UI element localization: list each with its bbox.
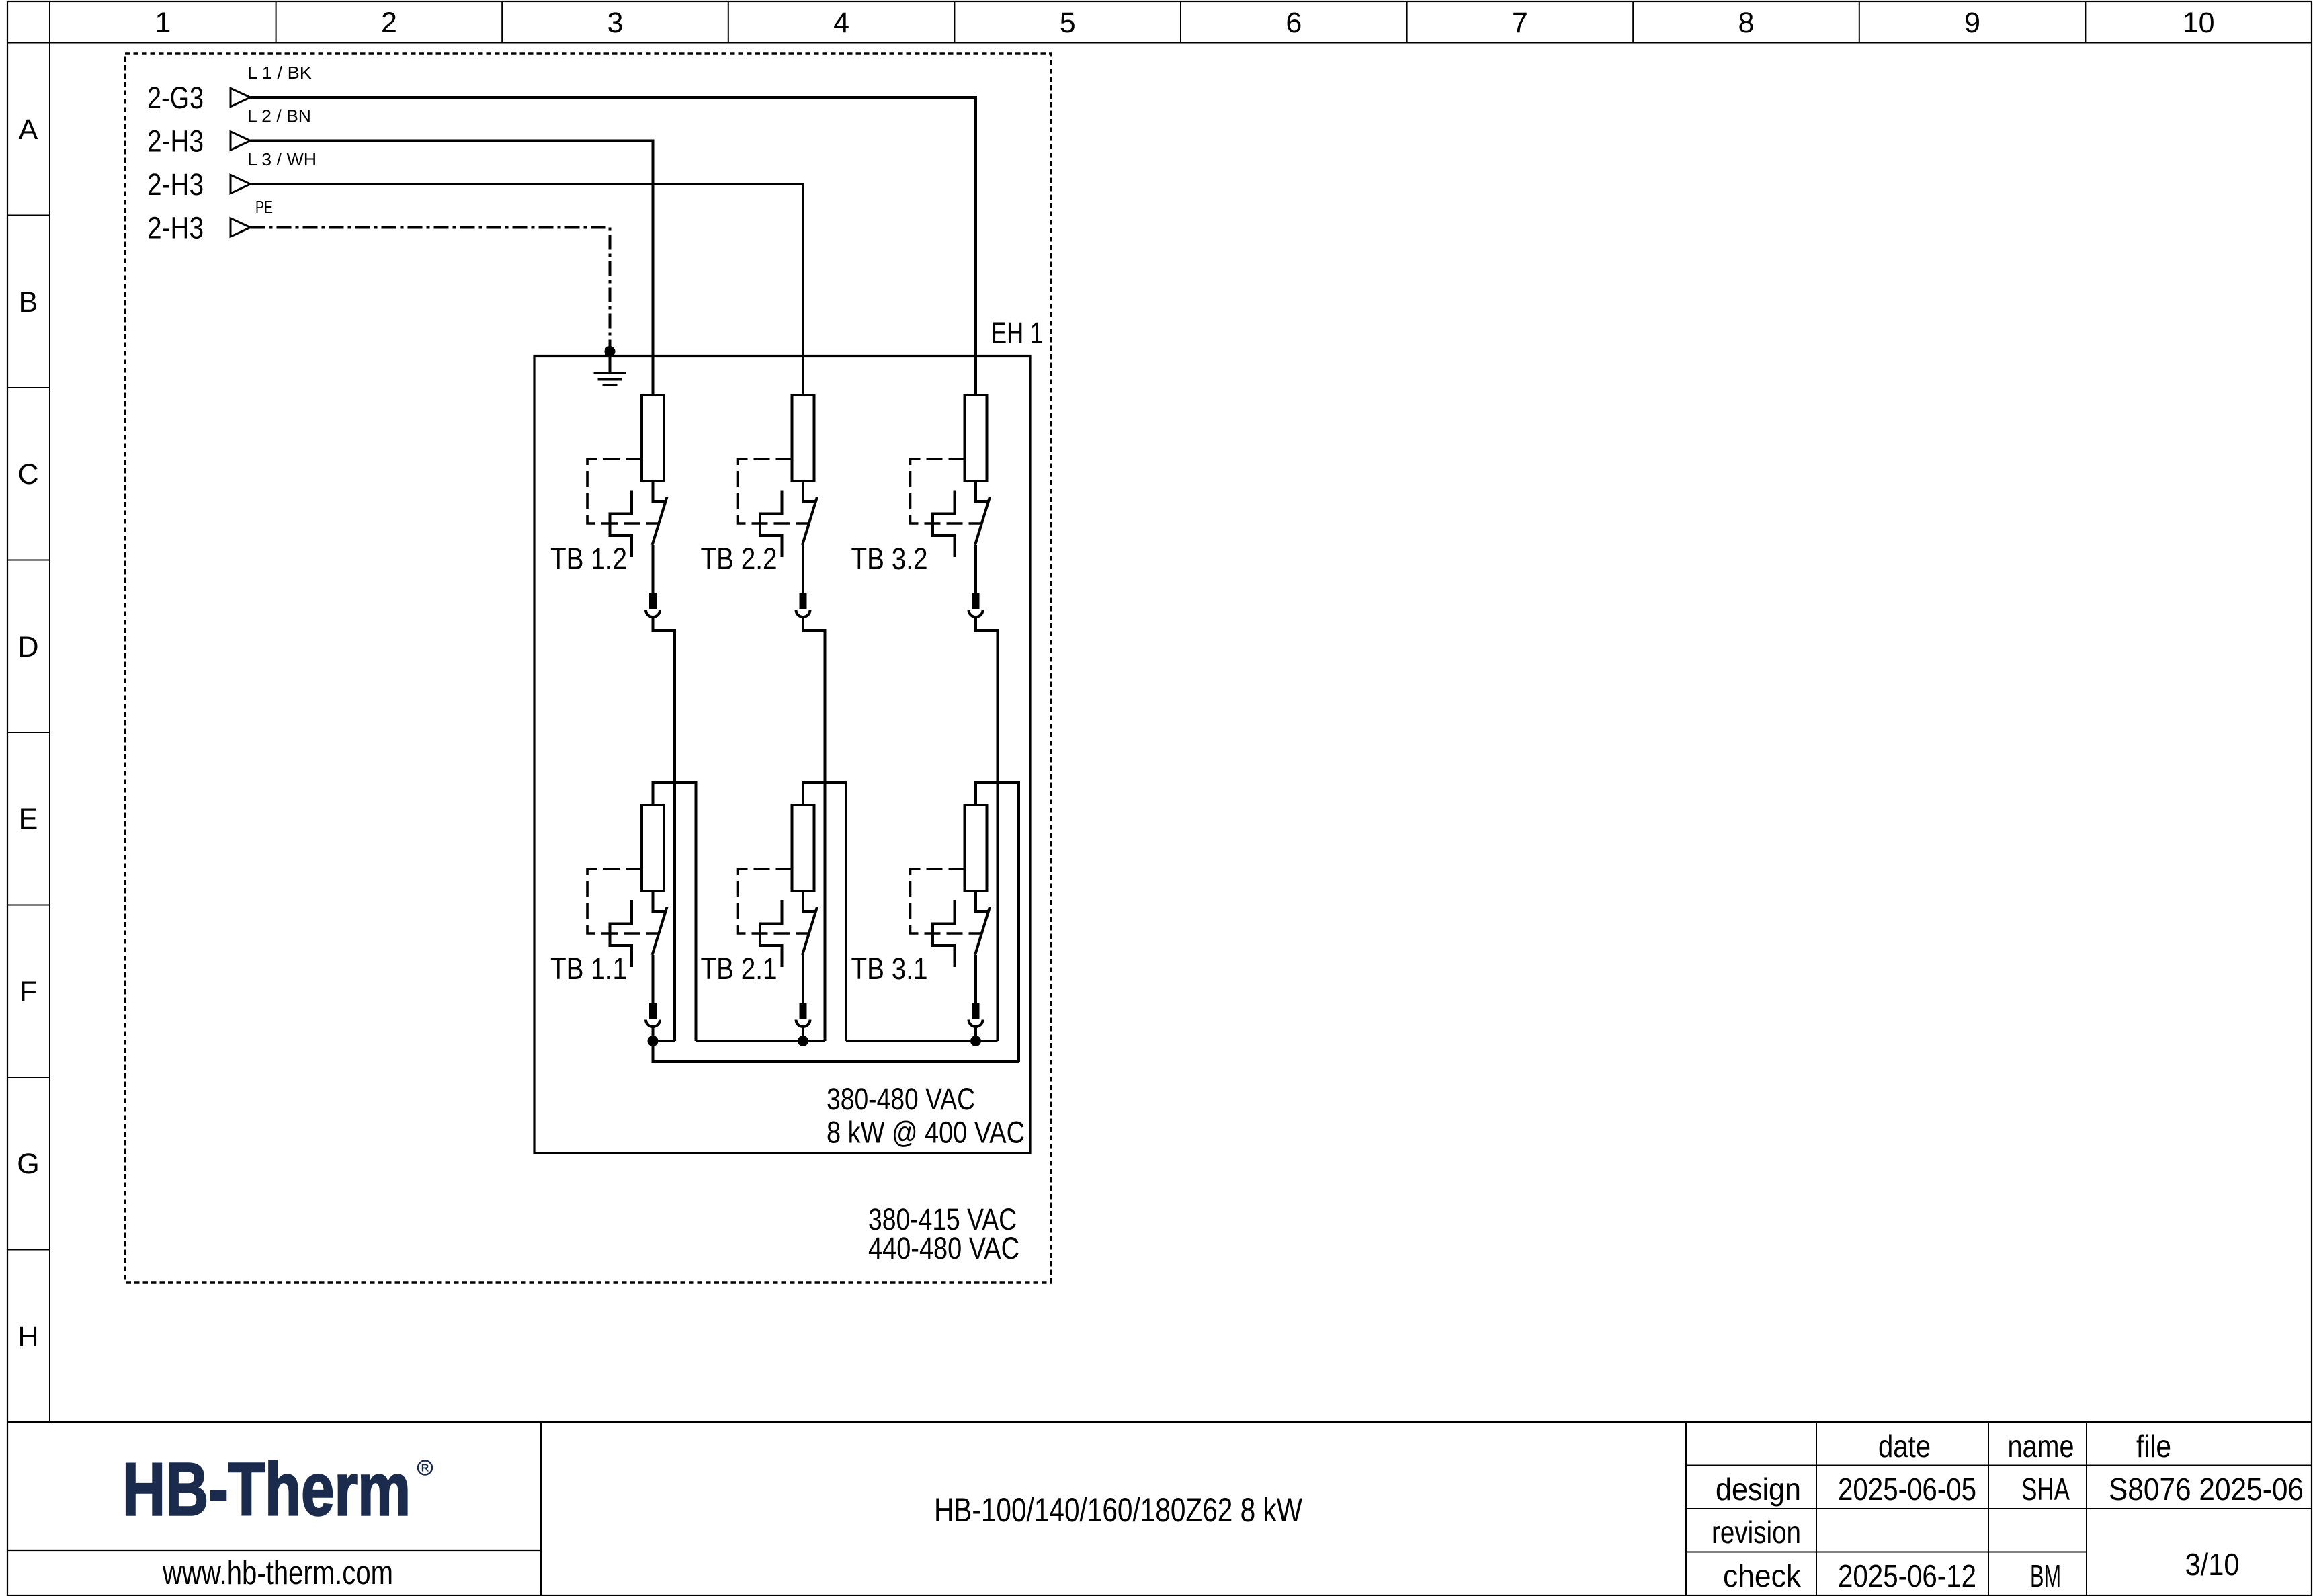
svg-text:G: G (17, 1148, 39, 1180)
svg-text:8: 8 (1738, 7, 1755, 39)
svg-text:6: 6 (1286, 7, 1302, 39)
svg-text:date: date (1878, 1429, 1931, 1464)
svg-text:1: 1 (155, 7, 171, 39)
svg-text:2-H3: 2-H3 (147, 124, 204, 159)
svg-text:B: B (19, 286, 38, 319)
svg-text:TB 3.2: TB 3.2 (851, 542, 928, 576)
svg-text:2-G3: 2-G3 (147, 81, 204, 115)
svg-text:name: name (2008, 1429, 2074, 1464)
svg-text:TB 1.1: TB 1.1 (550, 952, 627, 986)
svg-text:R: R (421, 1463, 429, 1474)
svg-text:TB 2.2: TB 2.2 (701, 542, 777, 576)
svg-text:HB-Therm: HB-Therm (122, 1448, 411, 1531)
svg-text:2025-06-05: 2025-06-05 (1838, 1472, 1976, 1507)
svg-text:4: 4 (833, 7, 849, 39)
svg-text:9: 9 (1964, 7, 1980, 39)
svg-text:E: E (19, 803, 38, 835)
svg-text:2-H3: 2-H3 (147, 211, 204, 245)
svg-text:A: A (19, 114, 38, 146)
svg-text:HB-100/140/160/180Z62 8 kW: HB-100/140/160/180Z62 8 kW (934, 1491, 1303, 1529)
svg-text:2: 2 (381, 7, 397, 39)
svg-text:10: 10 (2183, 7, 2215, 39)
svg-text:7: 7 (1512, 7, 1528, 39)
svg-text:www.hb-therm.com: www.hb-therm.com (162, 1555, 393, 1591)
svg-text:TB 2.1: TB 2.1 (701, 952, 777, 986)
svg-text:TB 1.2: TB 1.2 (550, 542, 627, 576)
svg-text:BM: BM (2030, 1558, 2061, 1593)
svg-text:L 2 / BN: L 2 / BN (247, 106, 311, 126)
svg-text:L 3 / WH: L 3 / WH (247, 149, 317, 169)
svg-text:2025-06-12: 2025-06-12 (1838, 1558, 1976, 1593)
svg-text:PE: PE (255, 197, 273, 217)
svg-text:D: D (17, 631, 38, 663)
svg-text:2-H3: 2-H3 (147, 167, 204, 202)
svg-text:3: 3 (607, 7, 624, 39)
svg-text:H: H (17, 1320, 38, 1353)
svg-text:revision: revision (1712, 1515, 1801, 1550)
svg-text:3/10: 3/10 (2185, 1547, 2240, 1582)
svg-text:F: F (19, 976, 37, 1008)
svg-text:S8076 2025-06: S8076 2025-06 (2109, 1472, 2304, 1507)
svg-text:check: check (1723, 1558, 1802, 1593)
svg-text:EH 1: EH 1 (991, 316, 1043, 350)
svg-text:L 1 / BK: L 1 / BK (247, 62, 312, 83)
svg-text:C: C (17, 458, 38, 491)
svg-text:file: file (2136, 1429, 2171, 1464)
svg-text:TB 3.1: TB 3.1 (851, 952, 928, 986)
svg-text:5: 5 (1060, 7, 1076, 39)
svg-text:440-480 VAC: 440-480 VAC (868, 1231, 1019, 1265)
svg-text:design: design (1716, 1472, 1801, 1507)
svg-text:SHA: SHA (2021, 1472, 2070, 1507)
svg-text:380-480 VAC: 380-480 VAC (827, 1082, 975, 1116)
svg-text:8 kW @ 400 VAC: 8 kW @ 400 VAC (827, 1116, 1025, 1150)
